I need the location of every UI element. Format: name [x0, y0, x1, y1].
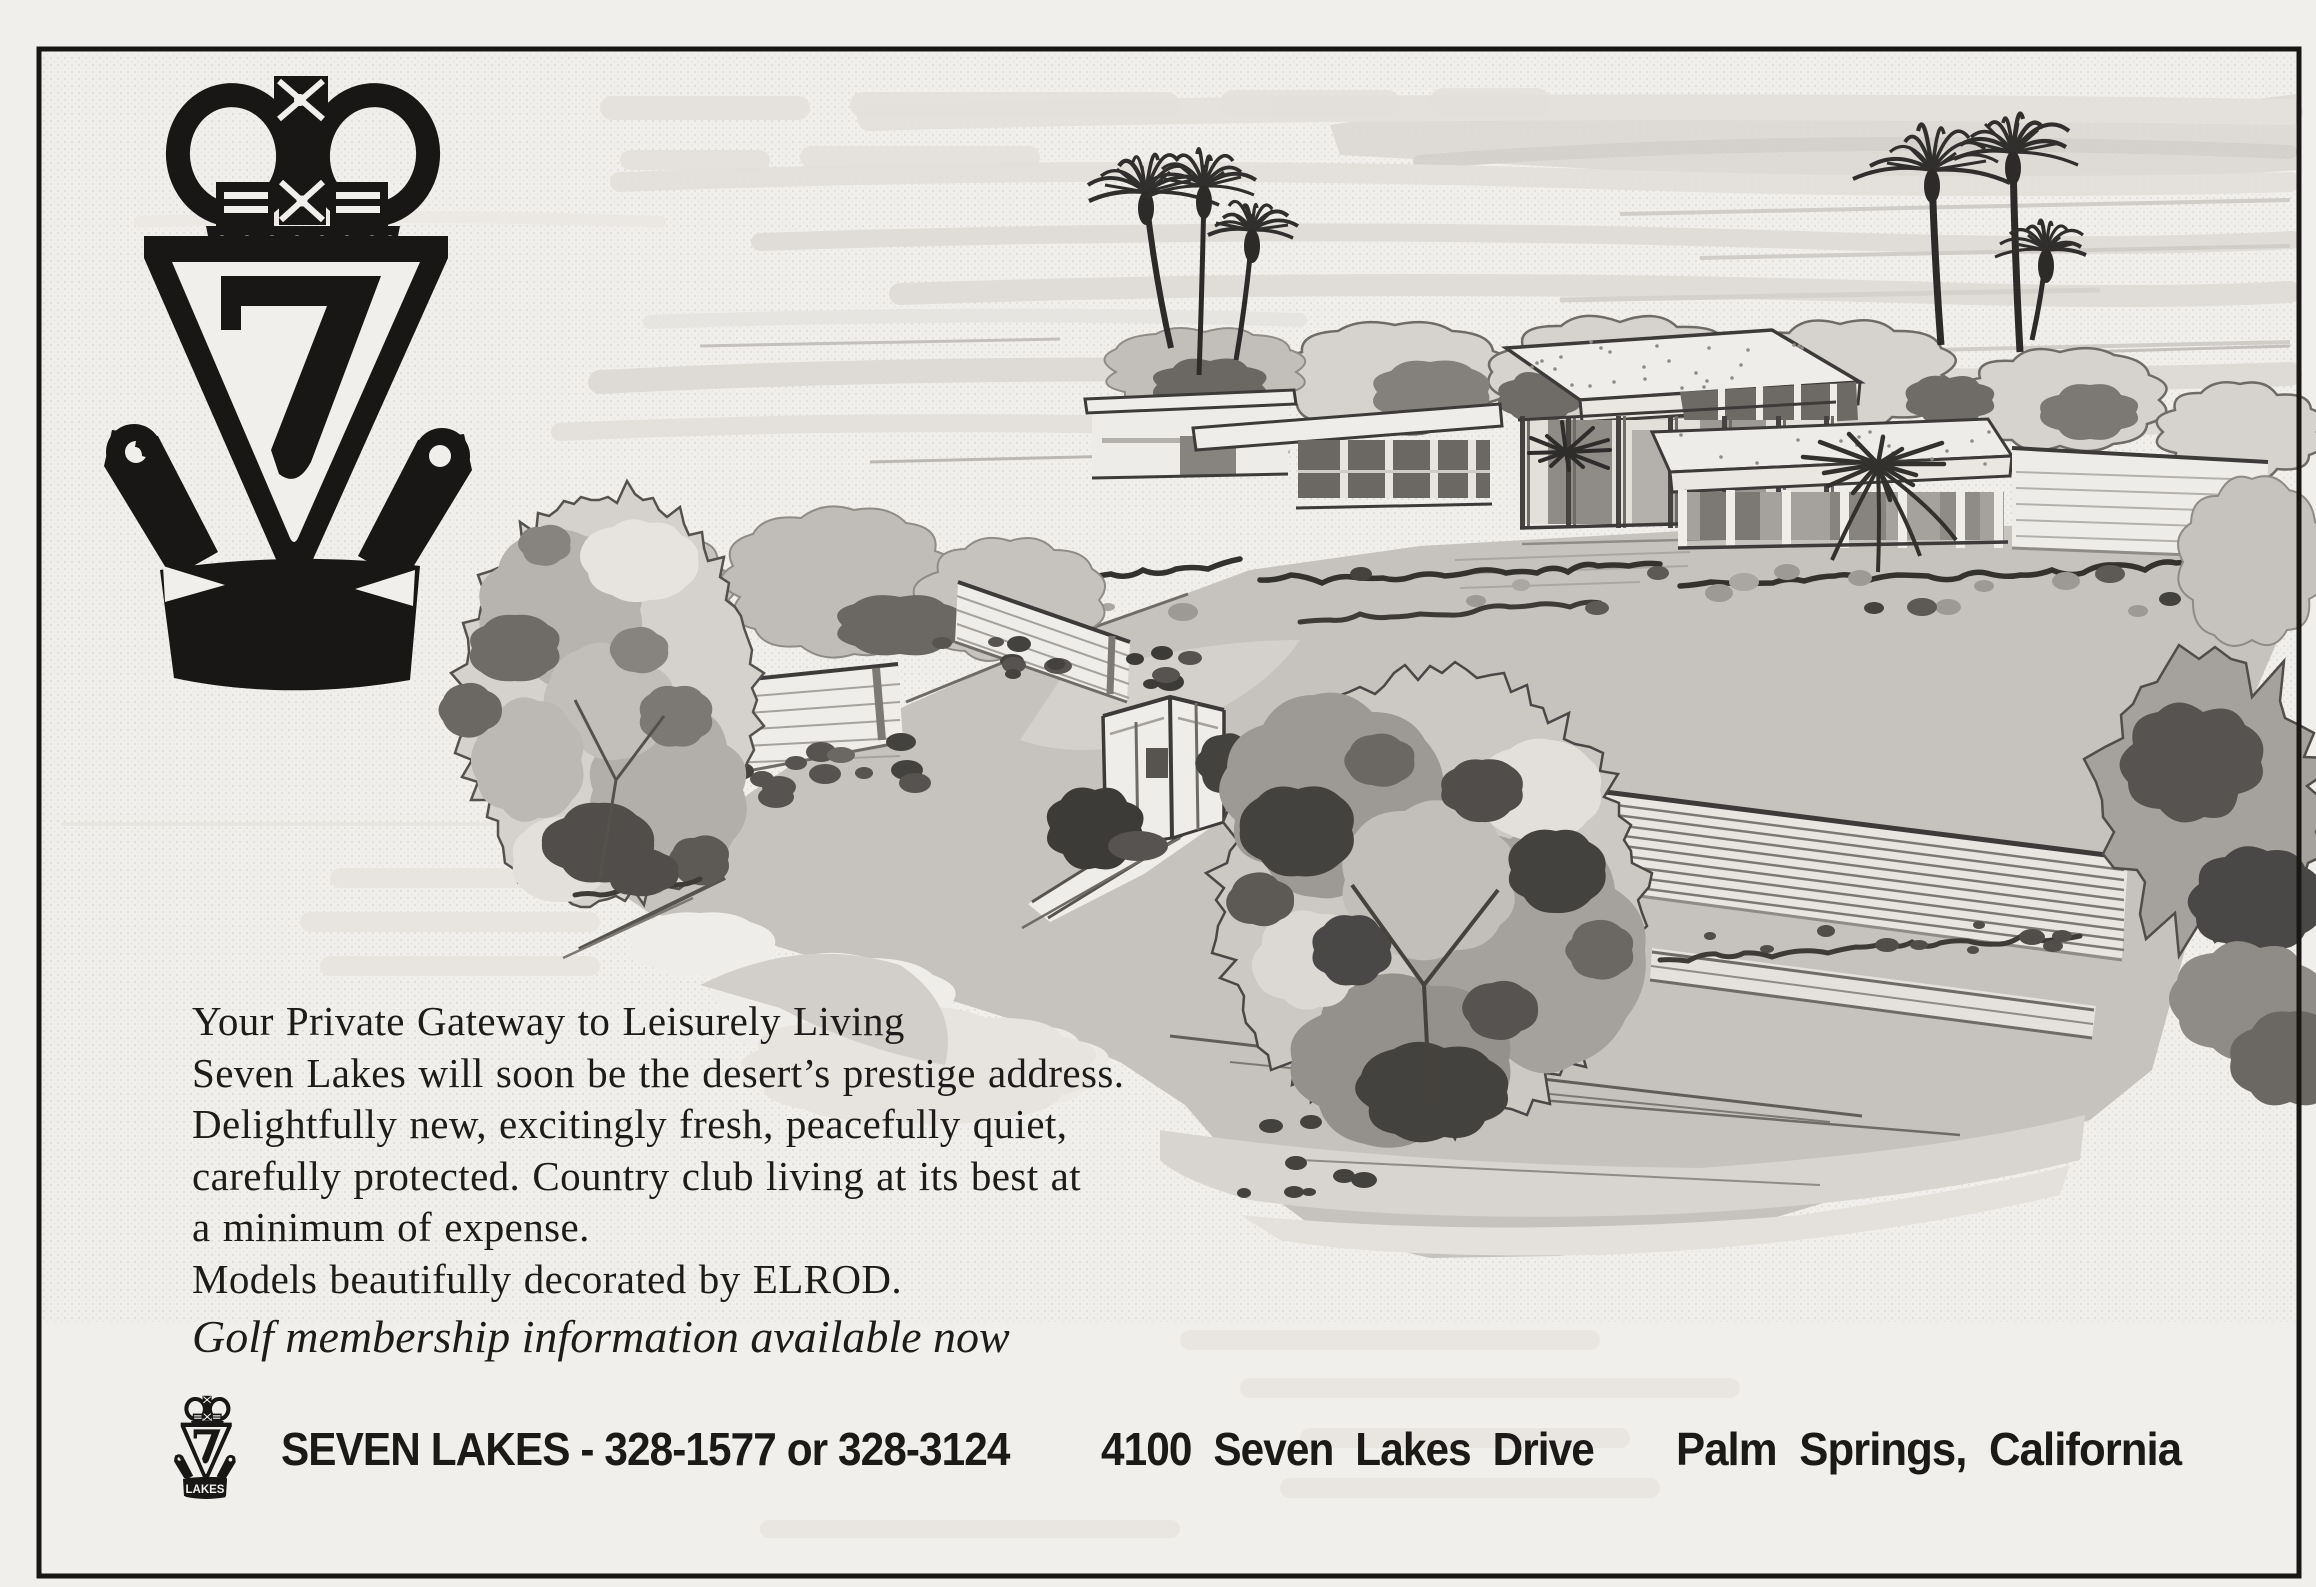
svg-text:LAKES: LAKES: [186, 1484, 225, 1496]
